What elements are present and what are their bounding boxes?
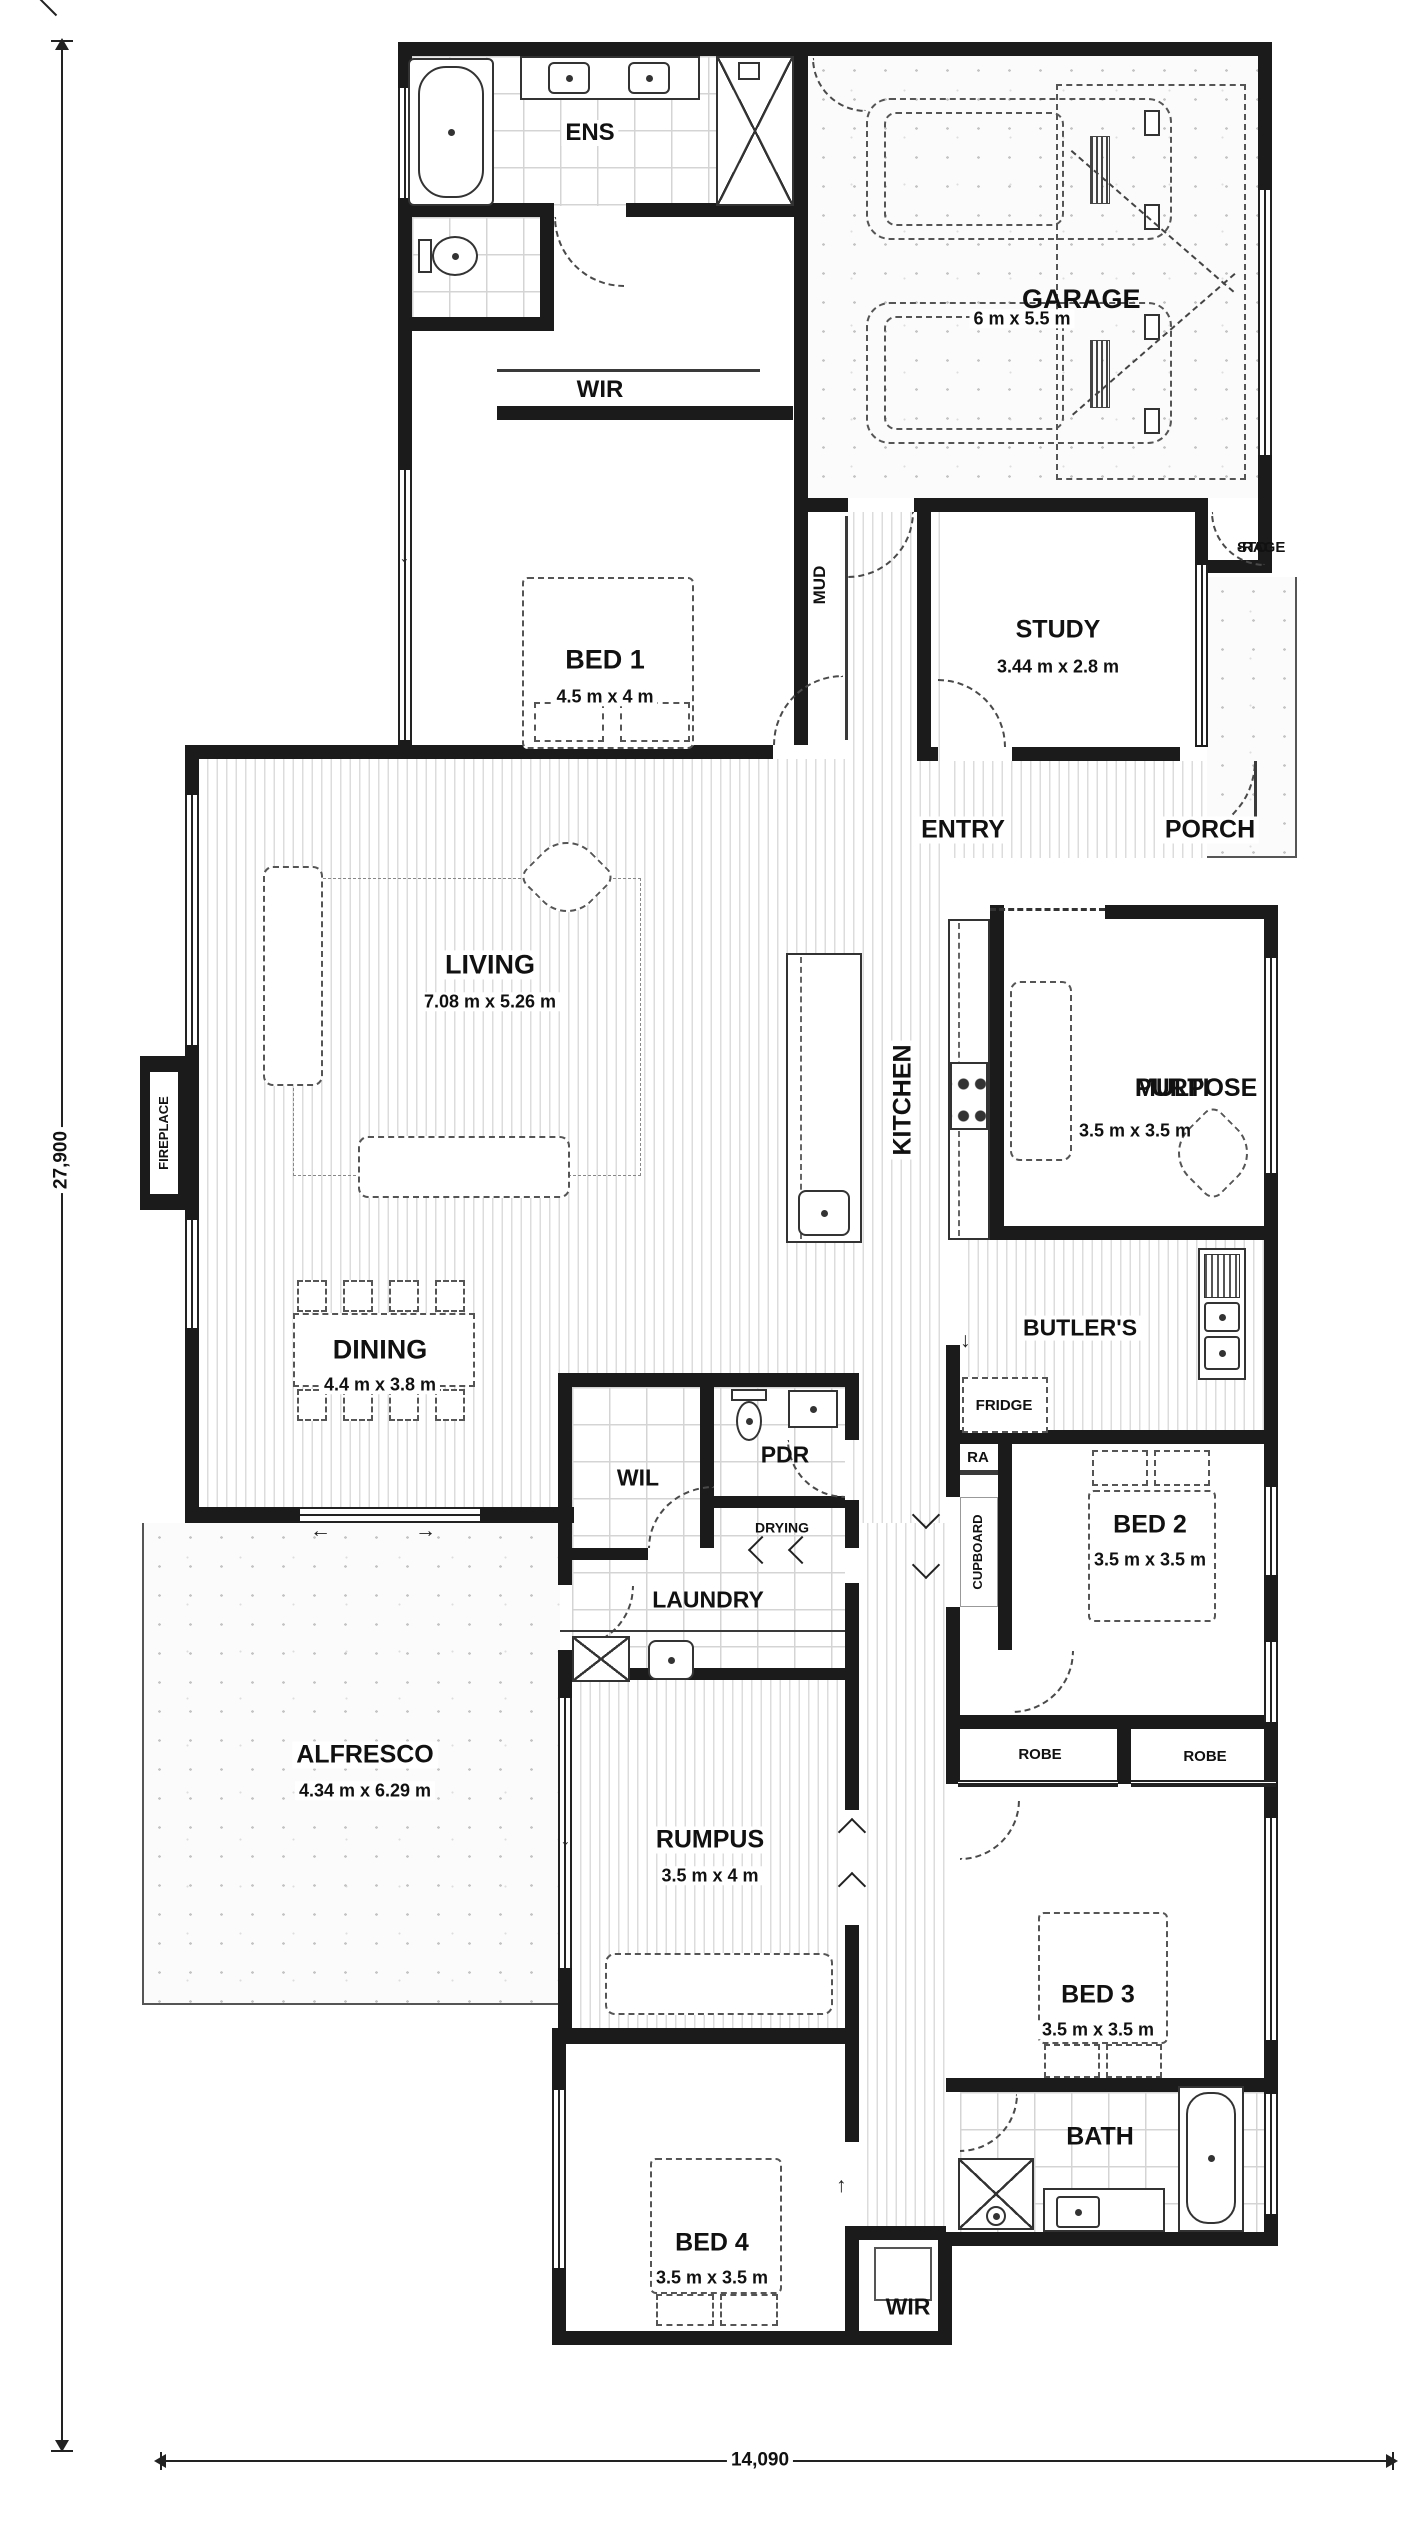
room-label-alfresco: ALFRESCO — [292, 1742, 438, 1769]
wall — [845, 1925, 859, 2142]
dimension-label-width: 14,090 — [727, 2451, 793, 2472]
room-label-wir-lower: WIR — [882, 2295, 935, 2320]
cooktop — [950, 1062, 988, 1130]
arrow-right-icon: → — [415, 1520, 436, 1541]
wall — [558, 1373, 859, 1387]
window — [1264, 958, 1278, 1173]
window — [1264, 2094, 1278, 2214]
bath-sink — [1056, 2196, 1100, 2228]
living-rug — [293, 878, 641, 1176]
rumpus-sofa — [605, 1953, 833, 2015]
island-sink — [798, 1190, 850, 1236]
wall — [946, 1715, 1278, 1729]
wall — [558, 1548, 648, 1560]
room-size-dining: 4.4 m x 3.8 m — [320, 1375, 440, 1394]
toilet-tank — [731, 1389, 767, 1401]
room-size-study: 3.44 m x 2.8 m — [993, 657, 1123, 676]
wall — [552, 2331, 952, 2345]
room-label-mud: MUD — [811, 562, 829, 609]
bed2-door-arc — [1012, 1651, 1074, 1713]
room-label-pdr: PDR — [757, 1443, 814, 1468]
wall — [946, 1444, 960, 1497]
wall — [808, 498, 848, 512]
window — [398, 470, 412, 740]
multi-sofa — [1010, 981, 1072, 1161]
vanity — [520, 56, 700, 100]
dining-chair — [297, 1280, 327, 1312]
butlers-sink — [1204, 1302, 1240, 1332]
driveway-dashed-outline — [1056, 84, 1246, 480]
arrow-down-icon: ↓ — [960, 1330, 971, 1351]
room-label-laundry: LAUNDRY — [648, 1588, 768, 1613]
toilet-tank — [418, 239, 432, 273]
dining-chair — [435, 1280, 465, 1312]
wall — [938, 2232, 1278, 2246]
wall — [1012, 747, 1180, 761]
wall — [998, 1444, 1012, 1650]
bed4-pillow — [656, 2294, 714, 2326]
dimension-tick — [51, 2450, 73, 2452]
wall — [845, 1583, 859, 1810]
room-label-cupboard: CUPBOARD — [971, 1510, 985, 1593]
pdr-basin — [788, 1390, 838, 1428]
toilet-bowl — [736, 1401, 762, 1441]
laundry-trough — [648, 1640, 694, 1680]
wall — [917, 512, 931, 747]
room-label-dining: DINING — [329, 1335, 432, 1364]
toilet-bowl — [432, 236, 478, 276]
room-label-entry: ENTRY — [917, 817, 1009, 844]
room-label-ra: RA — [963, 1450, 993, 1466]
bed2-pillow — [1154, 1450, 1210, 1486]
room-label-robe-right: ROBE — [1179, 1749, 1230, 1765]
wall — [700, 1496, 845, 1508]
arrow-down-icon: ↓ — [560, 1828, 571, 1849]
study-door-arc — [938, 679, 1006, 747]
car-cabin — [884, 316, 1064, 430]
wall — [917, 747, 938, 761]
room-label-kitchen: KITCHEN — [890, 1040, 917, 1159]
room-label-fireplace: FIREPLACE — [157, 1092, 171, 1174]
living-sofa-vertical — [263, 866, 323, 1086]
room-label-bed2: BED 2 — [1109, 1512, 1191, 1539]
bed1-pillow — [534, 702, 604, 742]
bed1-door-arc — [773, 675, 843, 745]
wall — [946, 1607, 960, 1715]
room-label-study: STUDY — [1012, 617, 1105, 644]
arrow-down-icon: ↓ — [399, 545, 410, 566]
room-size-multi-purpose: 3.5 m x 3.5 m — [1075, 1121, 1195, 1140]
wall — [1117, 1729, 1131, 1784]
room-size-bed3: 3.5 m x 3.5 m — [1038, 2020, 1158, 2039]
living-sofa-horizontal — [358, 1136, 570, 1198]
room-label-bed4: BED 4 — [671, 2230, 753, 2257]
multi-armchair — [1164, 1104, 1263, 1203]
room-size-garage: 6 m x 5.5 m — [969, 309, 1074, 328]
bed3-pillow — [1044, 2044, 1100, 2078]
wall — [552, 2028, 859, 2044]
dimension-tick — [51, 40, 73, 42]
wall — [794, 42, 808, 512]
wall — [497, 406, 793, 420]
dining-chair — [389, 1280, 419, 1312]
robe-sliding-door — [1131, 1780, 1276, 1787]
room-size-alfresco: 4.34 m x 6.29 m — [295, 1781, 435, 1800]
room-label-wir-upper: WIR — [573, 377, 628, 403]
room-label-living: LIVING — [441, 950, 539, 979]
bed4-pillow — [720, 2294, 778, 2326]
window — [552, 2090, 566, 2268]
wall — [398, 317, 554, 331]
window — [1264, 1642, 1278, 1722]
wall — [990, 905, 1004, 1240]
shower-head — [986, 2206, 1006, 2226]
arrow-up-icon: ↑ — [836, 2175, 847, 2196]
wall — [914, 498, 1208, 512]
wall — [938, 2232, 952, 2345]
dimension-tick — [160, 2452, 162, 2470]
wall — [845, 1387, 859, 1440]
room-label-rumpus: RUMPUS — [652, 1827, 768, 1854]
room-label-fridge: FRIDGE — [972, 1398, 1037, 1414]
corner-tick — [39, 0, 57, 16]
window — [1264, 1487, 1278, 1575]
wall — [1105, 905, 1264, 919]
bathtub-inner — [1186, 2092, 1236, 2224]
room-label-bed3: BED 3 — [1057, 1982, 1139, 2009]
wall-line — [497, 369, 760, 372]
multi-line2: PURPOSE — [1135, 1075, 1257, 1102]
floor-hall-lower — [859, 1523, 946, 2226]
window — [1195, 565, 1208, 745]
laundry-bench-edge — [560, 1630, 845, 1632]
room-size-bed1: 4.5 m x 4 m — [552, 687, 657, 706]
wall — [540, 217, 554, 317]
window — [1264, 1818, 1278, 2040]
wall — [946, 1729, 960, 1784]
dimension-line-vertical — [61, 46, 63, 2450]
room-label-porch: PORCH — [1161, 817, 1259, 844]
wall — [845, 2226, 859, 2345]
butlers-drainer — [1204, 1254, 1240, 1298]
vanity-sink — [628, 62, 670, 94]
bed3-door-arc — [960, 1800, 1020, 1860]
wall — [946, 1345, 960, 1430]
wall — [845, 1500, 859, 1548]
wall — [859, 2226, 946, 2240]
shower-head — [738, 62, 760, 80]
wall-line — [960, 1470, 998, 1475]
floor-plan: ↓ ↓ ↓ ↑ ← → ENS WIR GARAGE 6 m x 5.5 m S… — [0, 0, 1420, 2537]
dimension-label-height: 27,900 — [52, 1127, 73, 1193]
room-label-bath: BATH — [1062, 2124, 1138, 2151]
bathtub-inner — [418, 66, 484, 198]
room-size-bed4: 3.5 m x 3.5 m — [652, 2268, 772, 2287]
dining-chair — [343, 1280, 373, 1312]
window — [185, 1220, 199, 1328]
room-size-bed2: 3.5 m x 3.5 m — [1090, 1550, 1210, 1569]
room-label-robe-left: ROBE — [1014, 1747, 1065, 1763]
room-size-living: 7.08 m x 5.26 m — [420, 992, 560, 1011]
bed1-pillow — [620, 702, 690, 742]
wall — [398, 42, 1272, 56]
garage-panel-door — [1258, 190, 1272, 455]
robe-sliding-door — [958, 1780, 1118, 1787]
room-label-ens: ENS — [561, 120, 618, 146]
room-label-bed1: BED 1 — [561, 645, 649, 674]
cased-opening-dashed — [990, 908, 1105, 911]
car-cabin — [884, 112, 1064, 226]
storage-line2: -RAGE — [1237, 540, 1285, 556]
window — [185, 795, 199, 1045]
washing-machine — [572, 1636, 630, 1682]
room-label-wil: WIL — [613, 1466, 663, 1491]
bed3-pillow — [1106, 2044, 1162, 2078]
bed2-pillow — [1092, 1450, 1148, 1486]
room-size-rumpus: 3.5 m x 4 m — [657, 1866, 762, 1885]
room-label-drying: DRYING — [751, 1520, 813, 1535]
butlers-sink — [1204, 1336, 1240, 1370]
arrow-left-icon: ← — [310, 1520, 331, 1541]
wall — [990, 1226, 1278, 1240]
dimension-tick — [1392, 2452, 1394, 2470]
room-label-butlers: BUTLER'S — [1019, 1316, 1141, 1341]
vanity-sink — [548, 62, 590, 94]
ens-door-arc — [554, 217, 624, 287]
